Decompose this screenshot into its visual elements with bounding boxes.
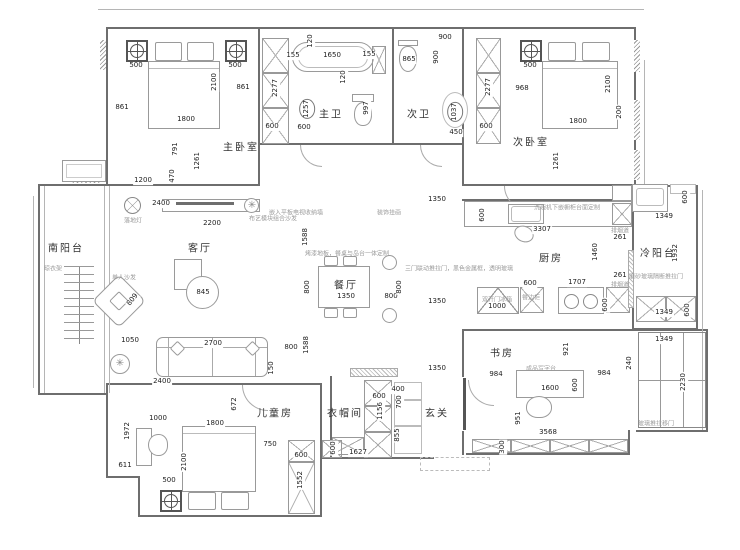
dimension-label: 2277 [272,78,280,98]
child-bed [182,426,256,492]
annotation-label: 布艺模块组合沙发 [249,214,297,223]
annotation-label: 洗碗机下嵌橱柜台面定制 [534,203,600,212]
dimension-label: 155 [285,52,300,60]
annotation-label: 三门联动推拉门，黑色金属框，透明玻璃 [405,264,513,273]
dimension-label: 800 [283,344,298,352]
exterior-line [644,60,645,184]
wall-segment [706,329,708,432]
ceiling-fixture-icon [225,40,247,62]
annotation-label: 成品写字台 [526,364,556,373]
door-arc [420,145,442,167]
dimension-label: 200 [616,104,624,119]
wall-segment [462,329,464,377]
wall-segment [38,184,108,186]
desk-chair [526,396,552,418]
dining-chair [343,308,357,318]
wall-segment [106,383,322,385]
dimension-label: 500 [161,477,176,485]
wall-segment [636,430,708,432]
entry-threshold [420,457,490,471]
annotation-label: 装饰挂画 [377,208,401,217]
dimension-label: 150 [268,360,276,375]
dimension-label: 450 [448,129,463,137]
wall-segment [696,185,698,330]
ceiling-fixture-icon [160,490,182,512]
room-label: 书房 [490,345,514,360]
dimension-label: 600 [371,393,386,401]
dimension-label: 1261 [194,151,202,171]
wall-segment [628,430,630,455]
pillow [188,492,216,510]
dimension-label: 261 [612,272,627,280]
bookcase [589,439,628,453]
dimension-label: 600 [522,280,537,288]
dimension-label: 1156 [377,401,385,421]
floor-lamp-icon [124,197,141,214]
dimension-label: 672 [231,396,239,411]
annotation-label: 落地灯 [124,216,142,225]
room-label: 南阳台 [48,240,84,255]
room-label: 玄关 [425,405,449,420]
dimension-label: 500 [128,62,143,70]
dimension-label: 1050 [120,337,140,345]
radiator-symbol [634,150,640,180]
laundry-sink-basin [636,188,664,206]
door-arc [300,145,322,167]
dimension-label: 600 [602,297,610,312]
dimension-label: 1349 [654,213,674,221]
wall-segment [38,393,108,395]
dimension-label: 600 [296,124,311,132]
dimension-label: 984 [596,370,611,378]
dimension-label: 1257 [299,99,315,119]
dimension-label: 1972 [124,421,132,441]
dimension-label: 1350 [427,196,447,204]
dimension-label: 2100 [211,72,219,92]
dimension-label: 3307 [532,226,552,234]
desk-chair [148,434,168,456]
dimension-label: 2400 [151,200,171,208]
dimension-label: 261 [612,234,627,242]
closet-cabinet [364,432,392,458]
wall-segment [462,184,636,186]
radiator-symbol [634,40,640,72]
dimension-label: 1707 [567,279,587,287]
dimension-label: 855 [394,427,402,442]
dimension-label: 2400 [152,378,172,386]
bookcase [511,439,550,453]
dimension-label: 865 [401,56,416,64]
annotation-label: 烤漆地板，餐桌与岛台一体定制 [305,249,389,258]
pillow [187,42,214,61]
wall-segment [466,453,630,455]
radiator-symbol [100,40,106,70]
dining-chair [324,308,338,318]
dimension-label: 2700 [203,340,223,348]
radiator-symbol [634,100,640,140]
room-label: 主卫 [319,106,343,121]
balcony-rail-line [33,196,34,388]
dimension-label: 984 [488,371,503,379]
ac-platform-inner [66,164,102,178]
dimension-label: 1588 [303,335,311,355]
bookcase [550,439,589,453]
wall-segment [392,27,394,145]
floor-plan-canvas: ✳ ✳ [0,0,740,550]
dimension-label: 2200 [202,220,222,228]
room-label: 儿童房 [257,405,293,420]
dimension-label: 951 [515,410,523,425]
wall-segment [38,184,40,395]
drying-rack [64,266,94,344]
dimension-label: 1932 [672,243,680,263]
annotation-label: 排烟道 [611,280,629,289]
dimension-label: 968 [514,85,529,93]
room-label: 客厅 [188,240,212,255]
room-label: 衣帽间 [327,405,363,420]
dimension-label: 240 [626,355,634,370]
dimension-label: 1037 [447,102,463,122]
dimension-label: 155 [361,51,376,59]
annotation-label: 餐边柜 [522,293,540,302]
wall-segment [138,476,140,517]
dining-chair [324,256,338,266]
dimension-label: 500 [227,62,242,70]
plant-icon: ✳ [116,359,124,369]
wall-segment [258,27,260,145]
door-arc [468,380,494,406]
dimension-label: 2100 [181,452,189,472]
dimension-label: 1350 [427,365,447,373]
annotation-label: 玻璃推拉移门 [638,419,674,428]
dimension-label: 921 [563,341,571,356]
dining-chair [343,256,357,266]
flue-box [612,185,632,201]
dimension-label: 600 [572,377,580,392]
dimension-label: 1600 [540,385,560,393]
wardrobe-cabinet [476,38,501,73]
shelf-hatch [350,368,398,377]
dimension-label: 750 [262,441,277,449]
roof-line [98,9,644,10]
annotation-label: 晾衣架 [44,264,62,273]
dimension-label: 1000 [148,415,168,423]
dimension-label: 700 [396,394,404,409]
pillow [582,42,610,61]
dimension-label: 1349 [654,309,674,317]
dimension-label: 600 [293,452,308,460]
wall-segment [106,476,140,478]
wall-segment [138,515,322,517]
stove [558,287,604,314]
bay-window [638,332,706,428]
dimension-label: 600 [479,207,487,222]
dining-chair [382,308,397,323]
dimension-label: 3568 [538,429,558,437]
dimension-label: 1460 [592,242,600,262]
dimension-label: 120 [307,33,315,48]
dimension-label: 2277 [485,77,493,97]
annotation-label: 磨砂玻璃隔断推拉门 [629,272,683,281]
dimension-label: 997 [363,100,371,115]
wall-segment [462,329,708,331]
dimension-label: 1800 [568,118,588,126]
ceiling-fixture-icon [520,40,542,62]
dimension-label: 500 [522,62,537,70]
dimension-label: 900 [433,49,441,64]
dimension-label: 2230 [680,372,688,392]
annotation-label: 单人沙发 [112,273,136,282]
room-label: 厨房 [539,250,563,265]
dimension-label: 611 [117,462,132,470]
dimension-label: 1350 [336,293,356,301]
pillow [548,42,576,61]
wall-segment [106,383,108,478]
wall-segment [106,27,636,29]
pillow [155,42,182,61]
dimension-label: 1200 [133,177,153,185]
dimension-label: 600 [330,440,338,455]
dimension-label: 1000 [487,303,507,311]
door-leaf [463,378,466,430]
dimension-label: 1588 [302,227,310,247]
dimension-label: 1350 [427,298,447,306]
dimension-label: 600 [682,189,690,204]
room-label: 主卧室 [223,139,259,154]
dimension-label: 1552 [297,470,305,490]
flue-cabinet [612,203,632,225]
room-label: 次卫 [407,106,431,121]
ceiling-fixture-icon [126,40,148,62]
dimension-label: 1627 [348,449,368,457]
dimension-label: 1650 [322,52,342,60]
wall-segment [106,27,108,186]
dimension-label: 600 [478,123,493,131]
dimension-label: 800 [304,279,312,294]
dimension-label: 845 [195,289,210,297]
dimension-label: 400 [390,386,405,394]
room-label: 餐厅 [334,277,358,292]
wall-segment [106,184,260,186]
room-label: 次卧室 [513,134,549,149]
pillow [221,492,249,510]
dimension-label: 861 [235,84,250,92]
dimension-label: 800 [396,279,404,294]
dimension-label: 470 [169,168,177,183]
tv-screen [176,202,234,205]
dimension-label: 1800 [205,420,225,428]
dimension-label: 791 [172,141,180,156]
dimension-label: 861 [114,104,129,112]
plant-icon: ✳ [248,201,256,211]
dimension-label: 900 [437,34,452,42]
dimension-label: 600 [264,123,279,131]
dimension-label: 120 [340,69,348,84]
dimension-label: 1261 [553,151,561,171]
dimension-label: 300 [499,439,507,454]
window-line [44,186,45,393]
wall-segment [462,431,464,455]
dimension-label: 1800 [176,116,196,124]
dimension-label: 1349 [654,336,674,344]
dimension-label: 2100 [605,74,613,94]
dimension-label: 600 [684,302,692,317]
